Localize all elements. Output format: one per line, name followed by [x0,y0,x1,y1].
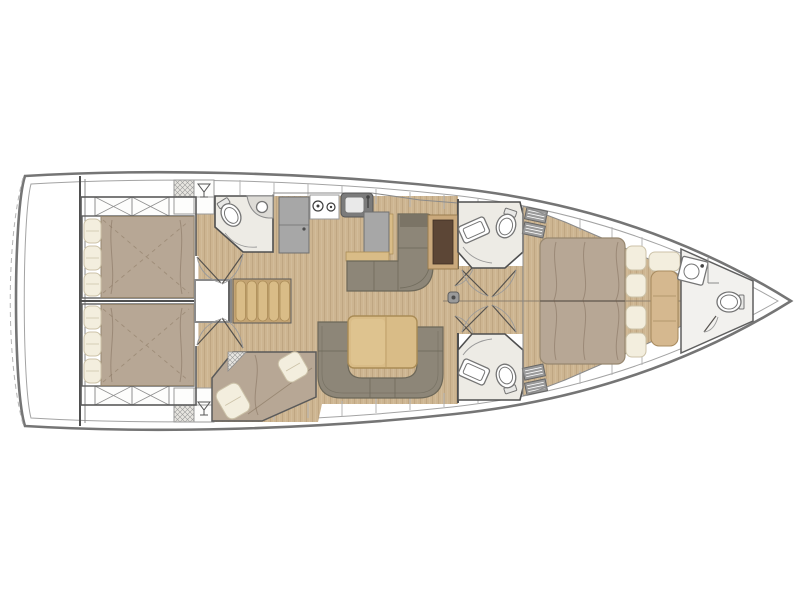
hatch-cross-icon [95,386,169,405]
sink-icon [345,197,364,213]
aft-cabin-starboard [82,304,194,386]
aft-cabin-port [82,216,194,298]
bow-seat [649,252,680,346]
toilet-icon [717,292,744,312]
galley-shelf [346,252,389,261]
cushion [649,252,680,271]
salon-dinette [318,316,443,398]
yacht-floorplan-page [0,0,800,600]
wardrobe [428,215,458,269]
galley-peninsula [364,212,389,256]
bow-head [677,249,753,353]
sink-icon [257,202,268,213]
mast-post-icon [448,292,459,303]
companionway-steps [233,279,291,323]
double-bed [82,216,194,298]
hatch-cross-icon [95,197,169,216]
yacht-floorplan [0,0,800,600]
double-bed [82,304,194,386]
engine-hatch [195,280,231,322]
